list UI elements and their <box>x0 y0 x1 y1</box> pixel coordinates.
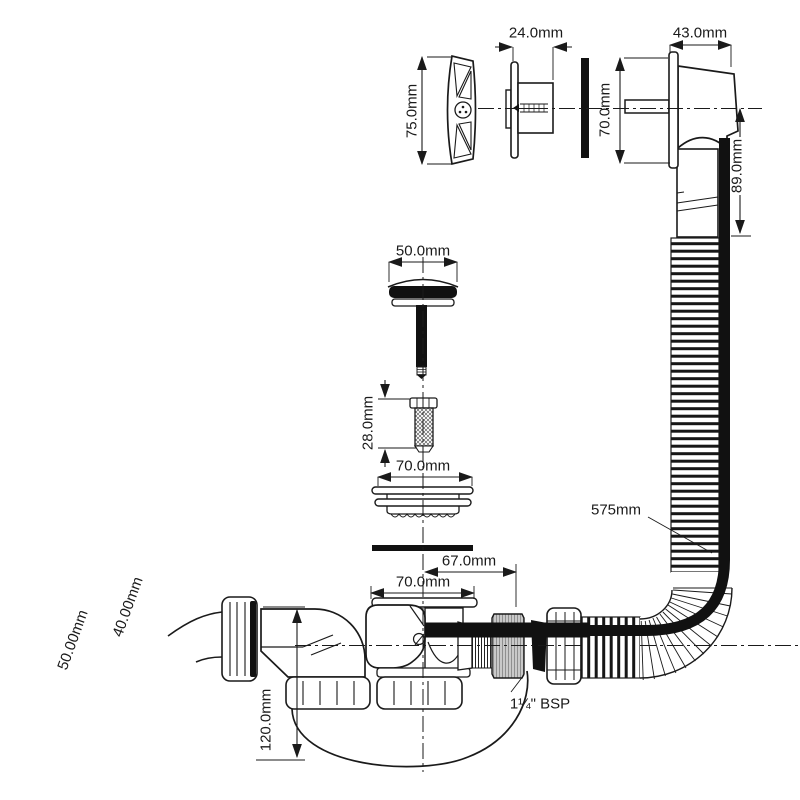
dial-screw-icon <box>455 102 471 118</box>
overflow-flange <box>669 52 678 168</box>
plug-stem <box>416 305 427 367</box>
dimension-faceplate-depth: 24.0mm <box>495 25 572 81</box>
hose-vertical-section <box>671 238 719 572</box>
trap-nut-right <box>377 677 462 709</box>
diagram-canvas: 75.0mm 24.0mm 43.0mm 70.0mm 89.0mm 50.0m… <box>0 0 800 800</box>
dim-label-dial-height: 75.0mm <box>404 84 421 138</box>
dim-label-waste-flange: 70.0mm <box>396 458 450 475</box>
overflow-dial <box>448 56 476 164</box>
dimension-overflow-body-depth: 43.0mm <box>670 25 731 68</box>
dimension-plug-cap: 50.0mm <box>389 243 457 283</box>
dim-label-overflow-body-height: 70.0mm <box>597 83 614 137</box>
dimension-dial-height: 75.0mm <box>404 57 453 164</box>
dim-label-plug-cap: 50.0mm <box>396 243 450 260</box>
dim-label-outlet-inner: 40.00mm <box>109 575 146 640</box>
trap-nut-left <box>286 677 370 709</box>
dim-label-thread-size: 1¼" BSP <box>510 696 570 713</box>
angled-outlet-pipe <box>0 119 222 662</box>
overflow-drop-pipe <box>677 149 718 237</box>
dim-label-trap-inlet: 70.0mm <box>396 574 450 591</box>
dim-label-overflow-body-depth: 43.0mm <box>673 25 727 42</box>
bath-waste-overflow-diagram: 75.0mm 24.0mm 43.0mm 70.0mm 89.0mm 50.0m… <box>0 0 800 800</box>
overflow-body-stem <box>625 100 669 113</box>
dim-label-trap-height: 120.0mm <box>258 689 275 752</box>
dim-label-trap-offset: 67.0mm <box>442 553 496 570</box>
dim-label-faceplate-depth: 24.0mm <box>509 25 563 42</box>
overflow-faceplate <box>506 62 553 158</box>
dim-label-outlet-outer: 50.00mm <box>54 608 91 673</box>
dimension-grub-screw: 28.0mm <box>360 380 418 467</box>
dim-label-hose-length: 575mm <box>591 502 641 519</box>
dim-label-overflow-pipe-drop: 89.0mm <box>729 139 746 193</box>
elbow-nut <box>222 597 257 681</box>
dim-label-grub-screw: 28.0mm <box>360 396 377 450</box>
trap-elbow <box>261 609 365 677</box>
dimension-waste-flange: 70.0mm <box>378 458 472 487</box>
